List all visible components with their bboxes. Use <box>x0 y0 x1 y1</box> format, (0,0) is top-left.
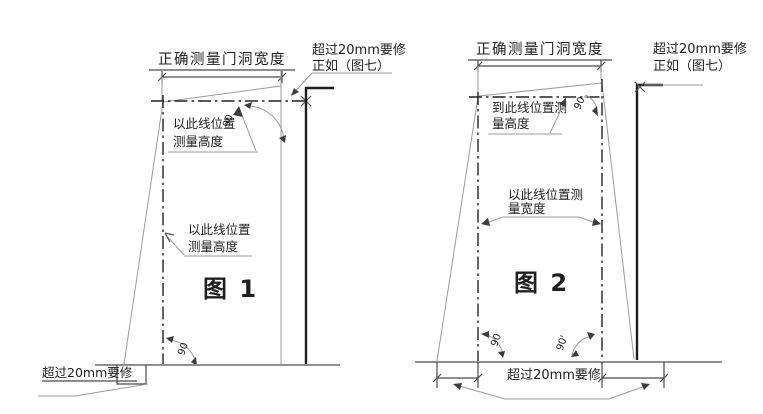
fig2-width-note-arrow-left <box>481 218 490 226</box>
fig2-width-dim-label: 正确测量门洞宽度 <box>476 41 604 58</box>
fig2-floor-fix-arrow-left <box>453 383 462 390</box>
fig1-angle-top-arc <box>246 106 284 141</box>
fig2-height-note-line2: 量高度 <box>492 116 530 131</box>
fig1-angle-top-arrow1 <box>244 102 252 109</box>
fig2-slanted-left-edge <box>437 97 478 361</box>
fig2-floor-fix-note: 超过20mm要修 <box>507 368 601 383</box>
fig2-angle-bottom-left-arrow2 <box>498 351 505 358</box>
fig2-height-note-line1: 到此线位置测 <box>492 100 567 115</box>
fig1-fix-note-line2: 正如（图七） <box>312 58 390 74</box>
fig1-width-dim-label: 正确测量门洞宽度 <box>158 51 286 68</box>
fig2-caption: 图 2 <box>514 269 569 297</box>
fig2-angle-bottom-left-label: 90 <box>489 332 504 348</box>
fig1-fix-note-line1: 超过20mm要修 <box>312 43 406 58</box>
fig1-floor-fix-note: 超过20mm要修 <box>42 365 133 380</box>
fig1-slanted-left-edge <box>124 102 163 364</box>
fig1-caption: 图 1 <box>203 275 258 303</box>
fig2-angle-top-arrow <box>592 106 598 116</box>
fig1-angle-bottom-arrow1 <box>166 336 174 343</box>
fig2-angle-bottom-right-arrow1 <box>587 332 595 340</box>
fig1-height-note-side-leader <box>166 235 184 255</box>
fig1-angle-top-arrow2 <box>279 135 286 143</box>
fig1-height-note-top-line2: 测量高度 <box>173 134 224 149</box>
figure-2: 正确测量门洞宽度 超过20mm要修 正如（图七） 到此线位置测 量高度 <box>415 41 747 399</box>
fig2-width-note-line1: 以此线位置测 <box>508 187 583 202</box>
fig1-height-note-side-line2: 测量高度 <box>188 239 239 254</box>
fig2-width-note-arrow-right <box>592 218 601 226</box>
fig2-slanted-right-edge <box>602 84 634 359</box>
fig1-angle-bottom-label: 90 <box>176 341 191 357</box>
fig2-angle-bottom-right-label: 90' <box>555 334 571 352</box>
fig2-fix-note-line1: 超过20mm要修 <box>653 42 747 57</box>
fig2-floor-fix-leader <box>456 385 648 399</box>
fig2-fix-note-line2: 正如（图七） <box>653 58 731 74</box>
measurement-diagram: 正确测量门洞宽度 超过20mm要修 正如（图七） 以此线位置 测量高度 <box>0 0 763 414</box>
fig1-floor-fix-leader <box>38 384 148 396</box>
fig1-height-note-side-arrow <box>165 233 174 242</box>
fig2-angle-bottom-left-arrow1 <box>481 331 489 338</box>
figure-1: 正确测量门洞宽度 超过20mm要修 正如（图七） 以此线位置 测量高度 <box>38 43 406 396</box>
fig1-height-note-side-line1: 以此线位置 <box>188 222 251 237</box>
fig2-bottom-bracket-right <box>598 362 668 388</box>
fig2-slanted-top-edge <box>479 83 602 96</box>
fig1-slanted-top-edge <box>163 86 281 102</box>
fig2-width-note-line2: 量宽度 <box>508 201 546 216</box>
